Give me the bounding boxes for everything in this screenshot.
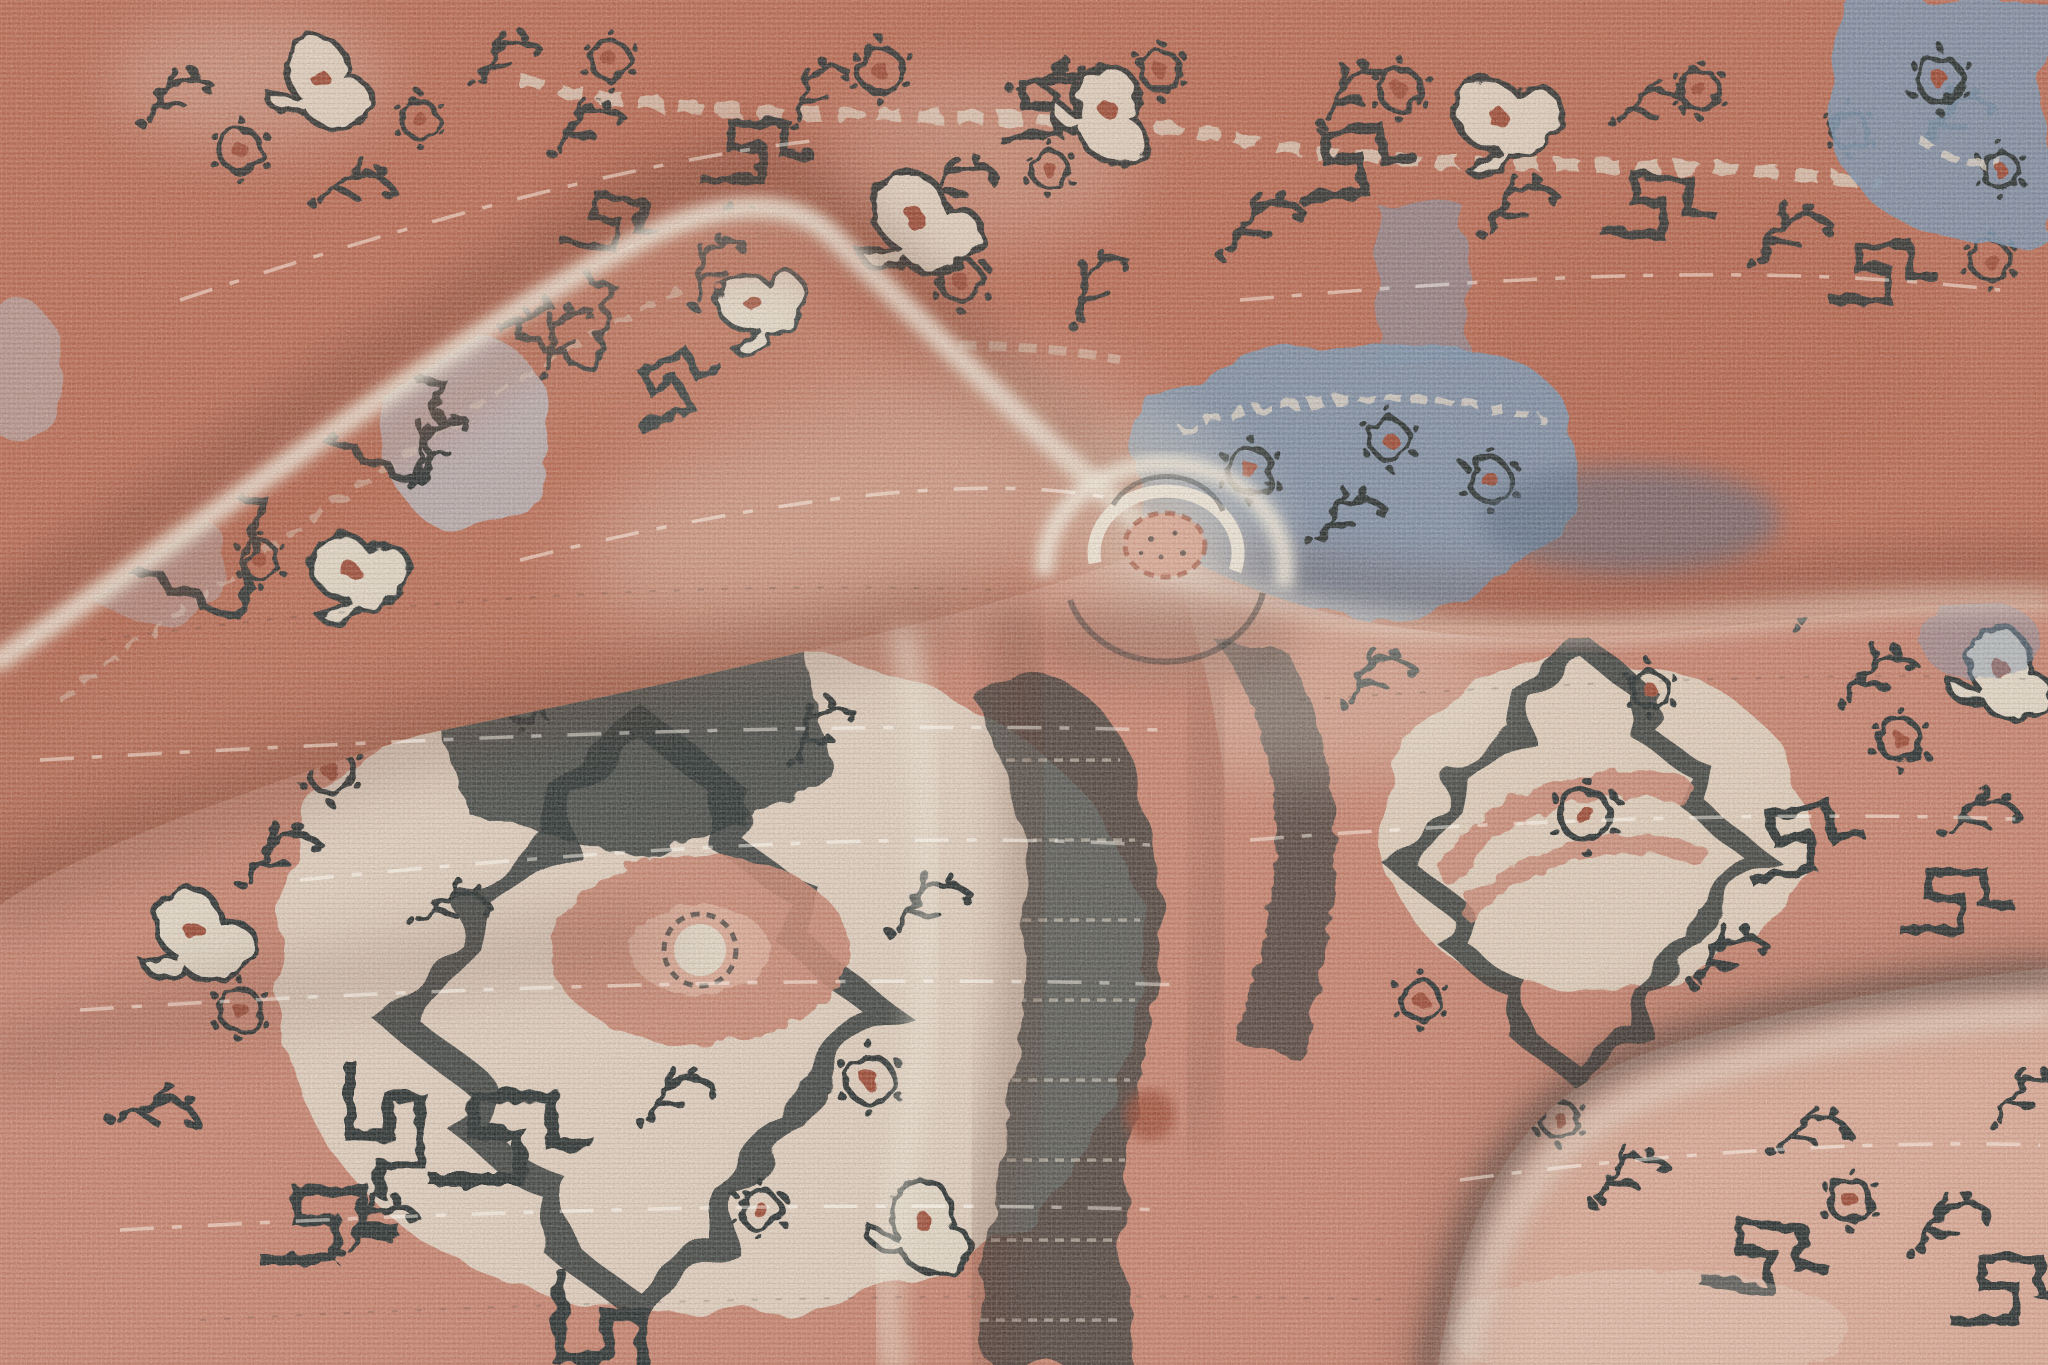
weave-texture-overlay <box>0 0 2048 1365</box>
dark-grain <box>0 0 2048 1365</box>
rug-photo-canvas: Close-up photograph of a crumpled machin… <box>0 0 2048 1365</box>
rug-photograph: Close-up photograph of a crumpled machin… <box>0 0 2048 1365</box>
